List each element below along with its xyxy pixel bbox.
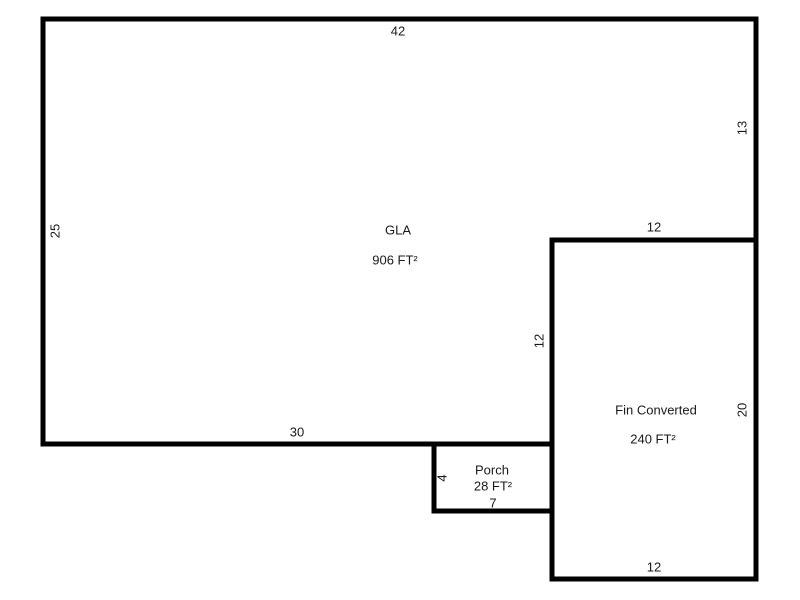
fin-converted-dimension-right: 20 (736, 403, 749, 417)
porch-area-name: Porch (475, 464, 509, 477)
gla-dimension-bottom: 30 (290, 426, 304, 439)
gla-dimension-right: 13 (736, 121, 749, 135)
fin-converted-dimension-bottom: 12 (647, 561, 661, 574)
gla-dimension-notch: 12 (533, 334, 546, 348)
gla-area-size: 906 FT² (372, 254, 418, 267)
fin-converted-dimension-top: 12 (647, 221, 661, 234)
gla-area-name: GLA (385, 224, 411, 237)
fin-converted-area-size: 240 FT² (630, 433, 676, 446)
floorplan-sketch: 42 25 13 30 12 GLA 906 FT² 12 20 12 Fin … (0, 0, 800, 600)
porch-dimension-bottom: 7 (489, 497, 496, 510)
fin-converted-area-name: Fin Converted (615, 404, 697, 417)
gla-dimension-top: 42 (391, 25, 405, 38)
sketch-outlines (0, 0, 800, 600)
porch-area-size: 28 FT² (474, 480, 512, 493)
porch-dimension-left: 4 (436, 474, 449, 481)
gla-dimension-left: 25 (49, 224, 62, 238)
